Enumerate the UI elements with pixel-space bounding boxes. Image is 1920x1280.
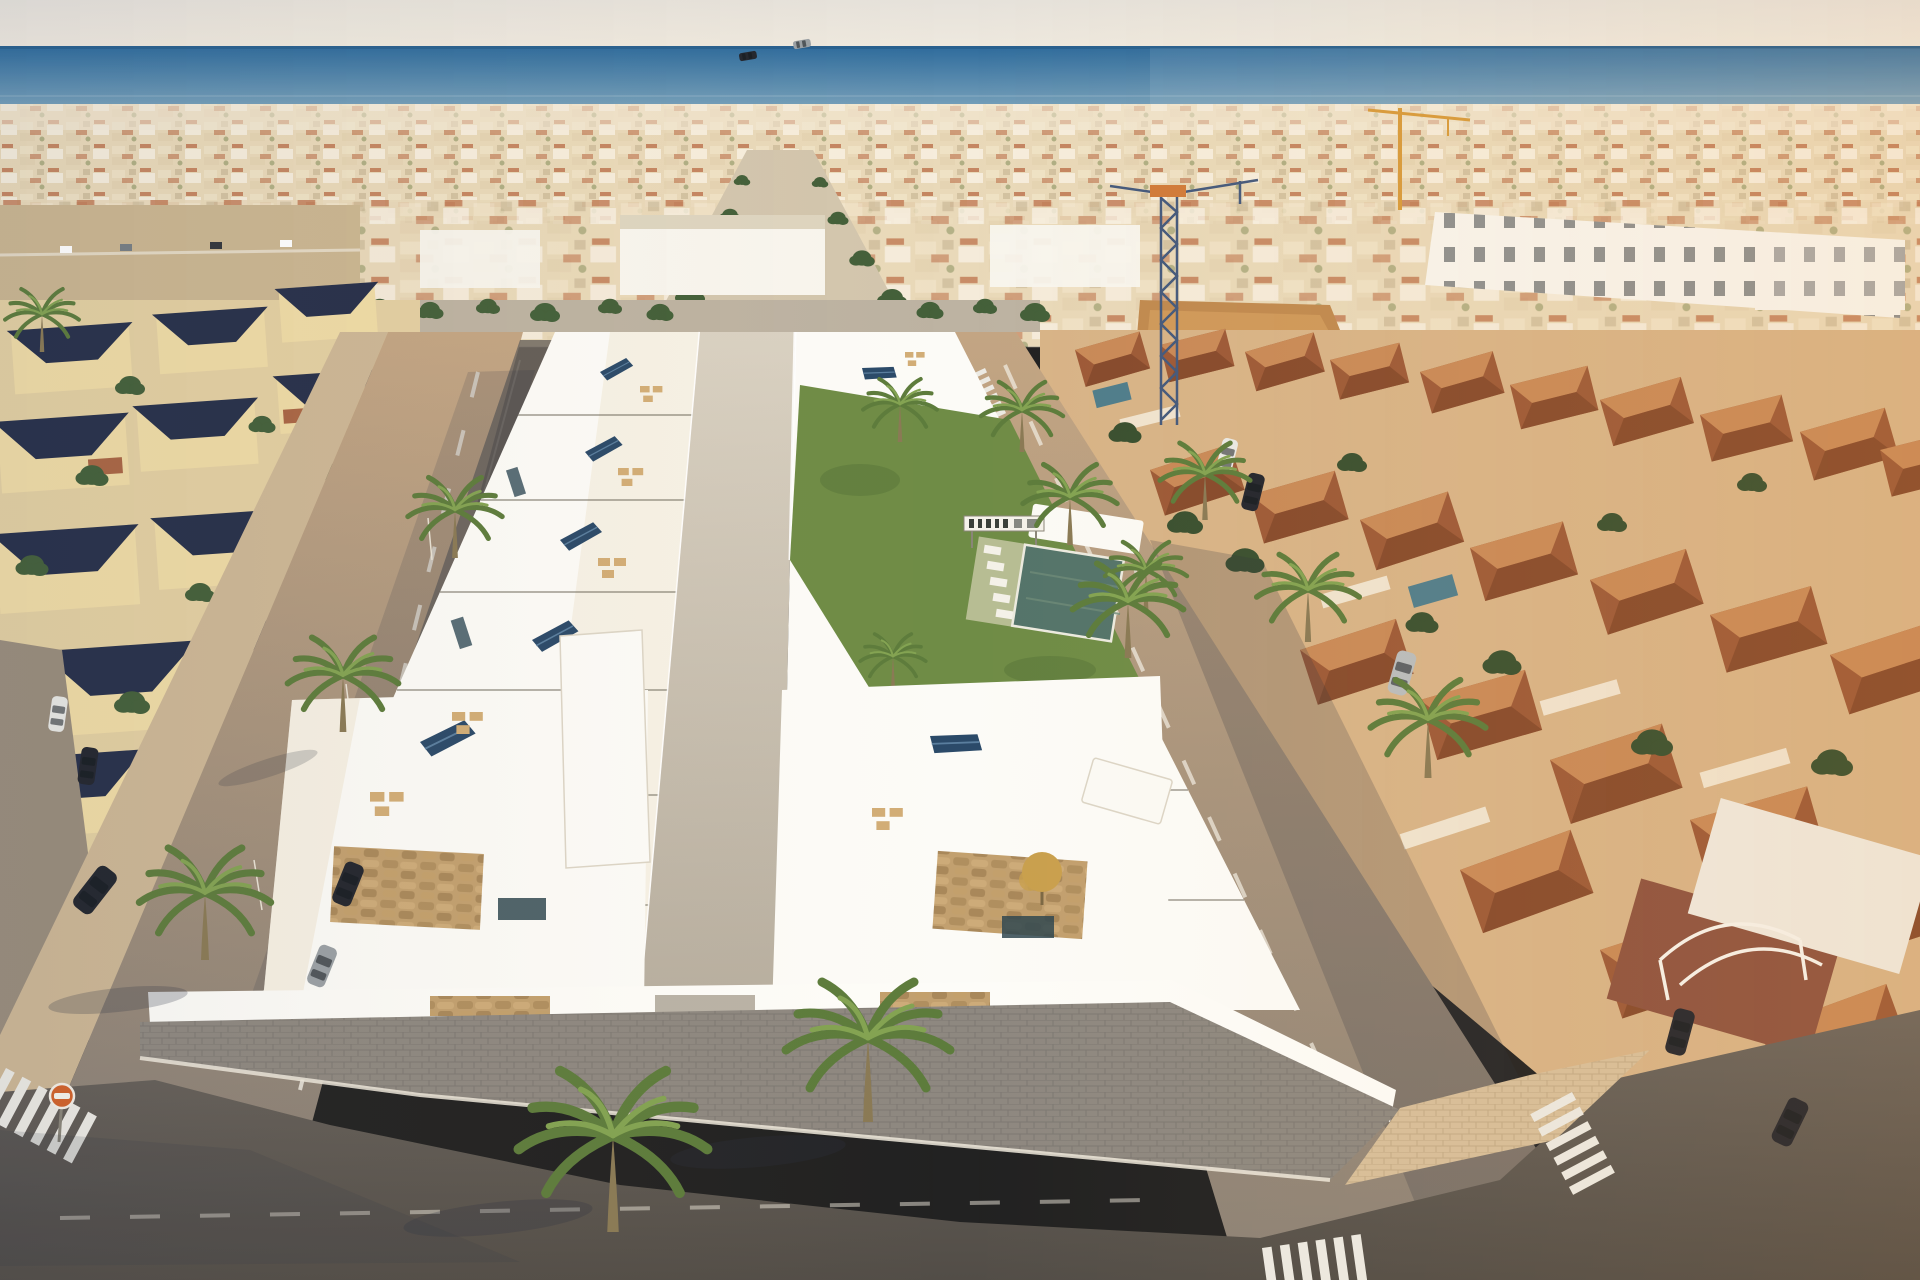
light-overlay bbox=[0, 0, 1920, 1280]
aerial-render-scene bbox=[0, 0, 1920, 1280]
